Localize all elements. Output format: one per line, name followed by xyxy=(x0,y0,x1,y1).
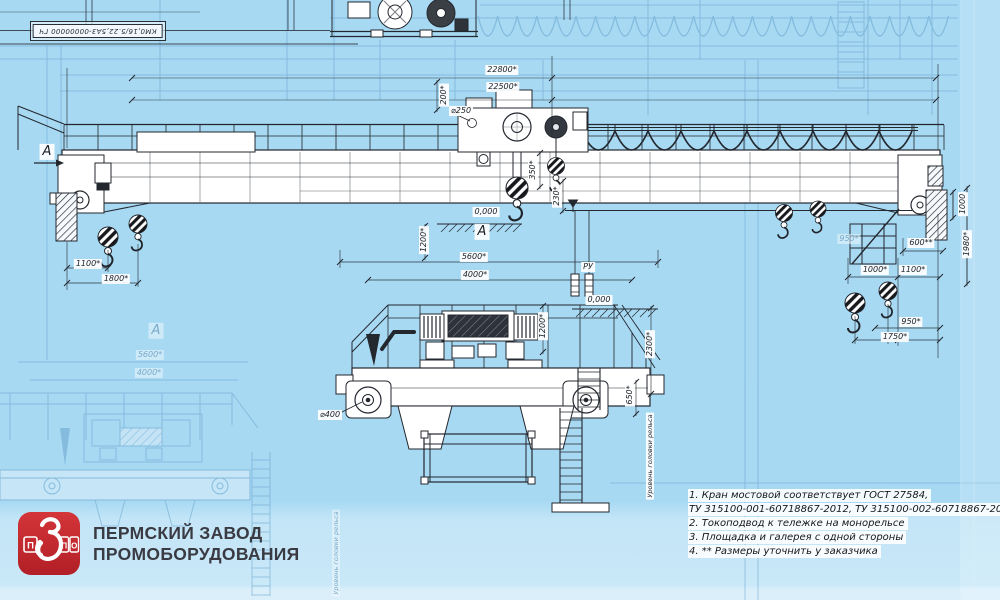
technical-notes: 1. Кран мостовой соответствует ГОСТ 2758… xyxy=(688,489,1000,559)
dim-label: РУ xyxy=(581,262,595,272)
dim-label: 1200* xyxy=(419,226,429,254)
logo-icon: П П О xyxy=(18,512,80,575)
dim-label: 1100* xyxy=(899,265,927,275)
dim-label: 950* xyxy=(837,234,860,244)
note-line: 1. Кран мостовой соответствует ГОСТ 2758… xyxy=(688,489,931,502)
note-line: 3. Площадка и галерея с одной стороны xyxy=(688,531,906,544)
dim-label: 230* xyxy=(552,184,562,207)
dim-label: 4000* xyxy=(461,270,489,280)
dim-label: 5600* xyxy=(136,350,164,360)
dim-label: ⌀250 xyxy=(449,106,473,116)
company-name: ПЕРМСКИЙ ЗАВОД ПРОМОБОРУДОВАНИЯ xyxy=(93,523,300,565)
dim-label: 4000* xyxy=(135,368,163,378)
dim-label: 5600* xyxy=(460,252,488,262)
dim-label: 22800* xyxy=(485,65,518,75)
dim-label: 1000* xyxy=(861,265,889,275)
note-line: 2. Токоподвод к тележке на монорельсе xyxy=(688,517,908,530)
company-name-line1: ПЕРМСКИЙ ЗАВОД xyxy=(93,523,300,544)
dim-label: 1980* xyxy=(962,230,972,258)
dim-label: 650* xyxy=(625,383,635,406)
dim-label: А xyxy=(149,323,164,339)
dim-label: 2300* xyxy=(645,330,655,358)
dim-label: 1000 xyxy=(958,192,968,216)
logo-letter: П xyxy=(27,541,34,552)
dim-label: 1800* xyxy=(102,274,130,284)
dim-label: Уровень головки рельса xyxy=(332,509,340,596)
dim-label: А xyxy=(40,144,55,160)
dim-label: 22500* xyxy=(486,82,519,92)
dim-label: Уровень головки рельса xyxy=(646,412,654,499)
dim-label: 1100* xyxy=(74,259,102,269)
dim-label: 0,000 xyxy=(586,295,613,305)
company-logo: П П О ПЕРМСКИЙ ЗАВОД ПРОМОБОРУДОВАНИЯ xyxy=(18,512,300,575)
dim-label: 950* xyxy=(899,317,922,327)
dim-label: 0,000 xyxy=(473,207,500,217)
dim-label: А xyxy=(475,224,490,240)
dim-label: 600** xyxy=(907,238,934,248)
company-name-line2: ПРОМОБОРУДОВАНИЯ xyxy=(93,544,300,565)
blueprint-canvas: 22800*22500*⌀250200*350*230*0,000А5600*4… xyxy=(0,0,1000,600)
crane-hook-icon: П П О xyxy=(18,512,80,575)
logo-letter: О xyxy=(71,542,77,551)
dim-label: ⌀400 xyxy=(318,410,342,420)
dim-label: 1750* xyxy=(881,332,909,342)
dim-label: 200* xyxy=(439,83,449,106)
note-line: 4. ** Размеры уточнить у заказчика xyxy=(688,545,881,558)
logo-letter: П xyxy=(61,542,67,551)
dim-label: 1200* xyxy=(538,312,548,340)
drawing-code-stamp: КМ0,16/5.22,5А3-00000000 ГЧ xyxy=(30,21,166,41)
note-line: ТУ 315100-001-60718867-2012, ТУ 315100-0… xyxy=(688,503,1000,516)
drawing-code-text: КМ0,16/5.22,5А3-00000000 ГЧ xyxy=(33,24,163,38)
dim-label: 350* xyxy=(528,158,538,181)
